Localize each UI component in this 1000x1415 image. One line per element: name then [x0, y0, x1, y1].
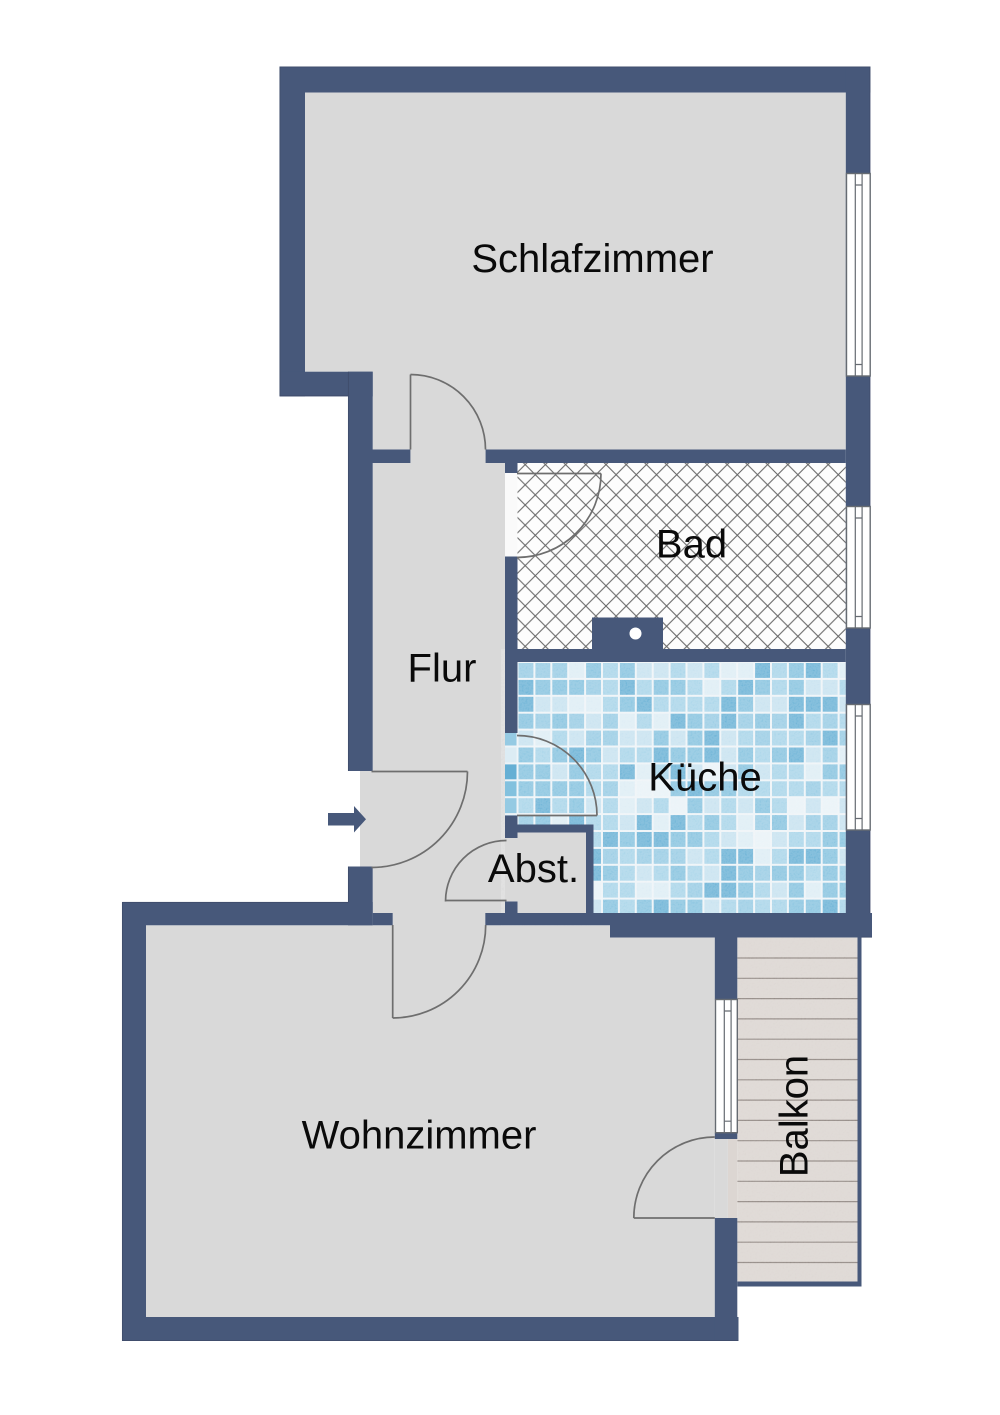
svg-text:Balkon: Balkon	[773, 1055, 817, 1177]
svg-text:Küche: Küche	[648, 756, 761, 800]
svg-text:Flur: Flur	[408, 647, 477, 691]
svg-text:Abst.: Abst.	[488, 847, 579, 891]
svg-text:Bad: Bad	[656, 523, 727, 567]
svg-text:Schlafzimmer: Schlafzimmer	[471, 237, 713, 281]
svg-text:Wohnzimmer: Wohnzimmer	[302, 1114, 537, 1158]
